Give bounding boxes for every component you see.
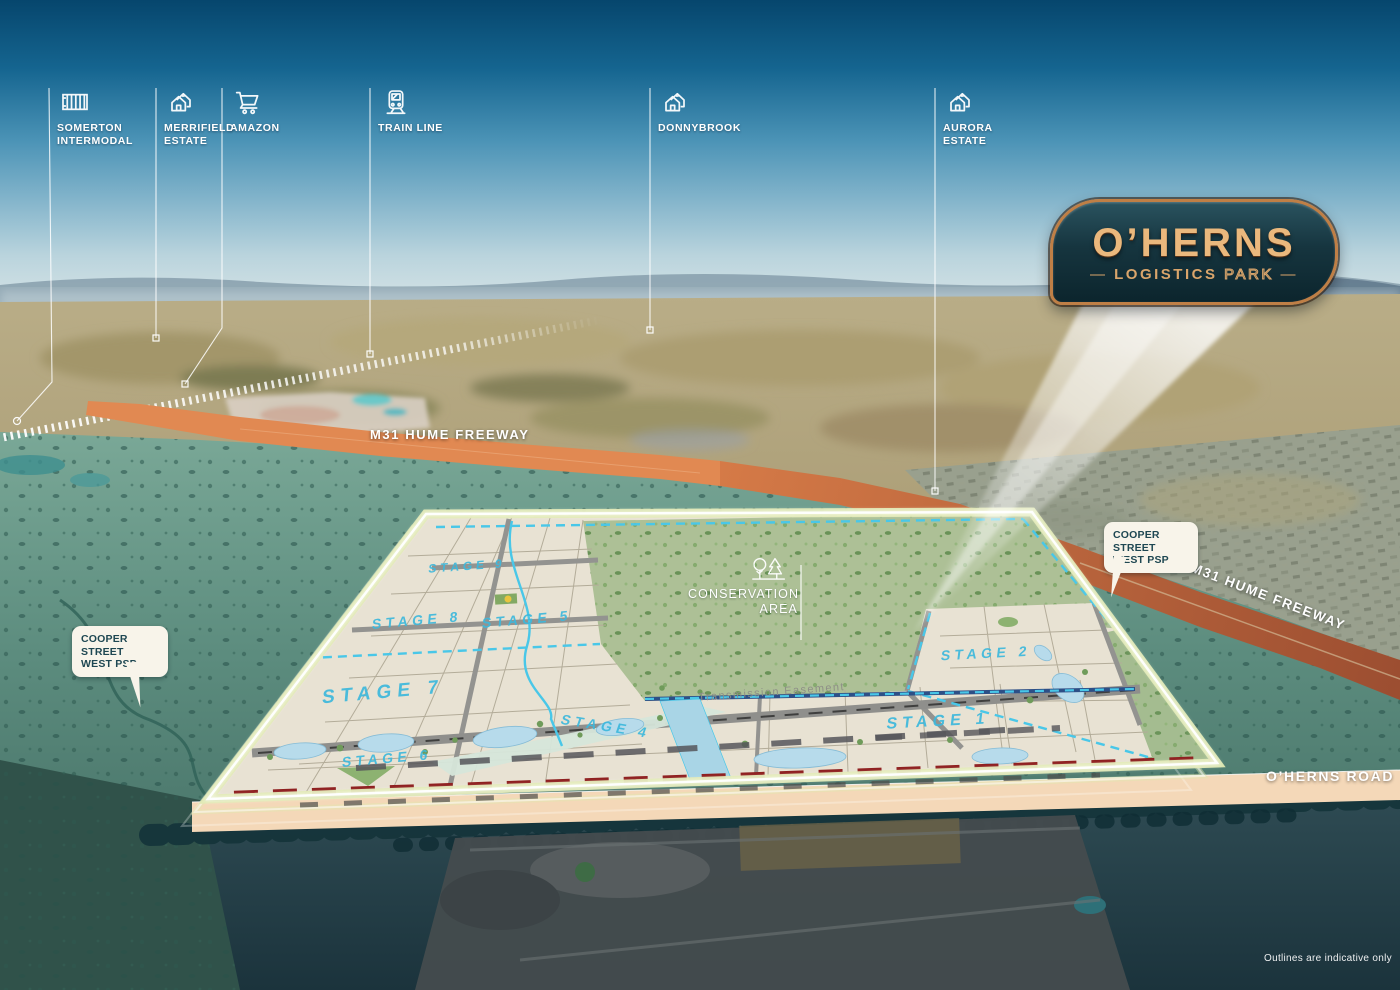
marker-label: AMAZON bbox=[230, 122, 350, 135]
aerial-map bbox=[0, 0, 1400, 990]
logo-subtitle-logistics: LOGISTICS bbox=[1114, 266, 1217, 283]
house-icon bbox=[164, 86, 200, 118]
oherns-road-label: O’HERNS ROAD bbox=[1266, 768, 1394, 784]
map-marker-donnybrook: DONNYBROOK bbox=[658, 86, 778, 135]
map-marker-somerton-intermodal: SOMERTON INTERMODAL bbox=[57, 86, 177, 147]
train-icon bbox=[378, 86, 414, 118]
house-icon bbox=[658, 86, 694, 118]
map-marker-aurora-estate: AURORA ESTATE bbox=[943, 86, 1063, 147]
cooper-street-callout-right: COOPER STREET WEST PSP bbox=[1104, 522, 1198, 573]
logo-title: O’HERNS bbox=[1092, 222, 1295, 264]
map-marker-amazon: AMAZON bbox=[230, 86, 350, 135]
marker-label: AURORA ESTATE bbox=[943, 122, 1063, 147]
trees-icon bbox=[748, 554, 788, 582]
logo-subtitle: — LOGISTICS PARK — bbox=[1090, 266, 1298, 283]
marker-label: DONNYBROOK bbox=[658, 122, 778, 135]
marker-label: TRAIN LINE bbox=[378, 122, 498, 135]
quarry bbox=[415, 815, 1130, 990]
house-icon bbox=[943, 86, 979, 118]
container-icon bbox=[57, 86, 93, 118]
conservation-label: CONSERVATION AREA bbox=[688, 554, 798, 617]
disclaimer-text: Outlines are indicative only bbox=[1264, 953, 1392, 964]
logo-subtitle-park: PARK bbox=[1224, 266, 1274, 283]
oherns-logistics-park-logo: O’HERNS — LOGISTICS PARK — bbox=[1050, 199, 1338, 305]
conservation-label-text: CONSERVATION AREA bbox=[688, 587, 798, 617]
freeway-label-left: M31 HUME FREEWAY bbox=[370, 427, 529, 442]
map-marker-train-line: TRAIN LINE bbox=[378, 86, 498, 135]
oherns-logistics-park-masterplan: SOMERTON INTERMODAL MERRIFIELD ESTATE AM… bbox=[0, 0, 1400, 990]
cart-icon bbox=[230, 86, 266, 118]
cooper-street-callout-left: COOPER STREET WEST PSP bbox=[72, 626, 168, 677]
marker-label: SOMERTON INTERMODAL bbox=[57, 122, 177, 147]
